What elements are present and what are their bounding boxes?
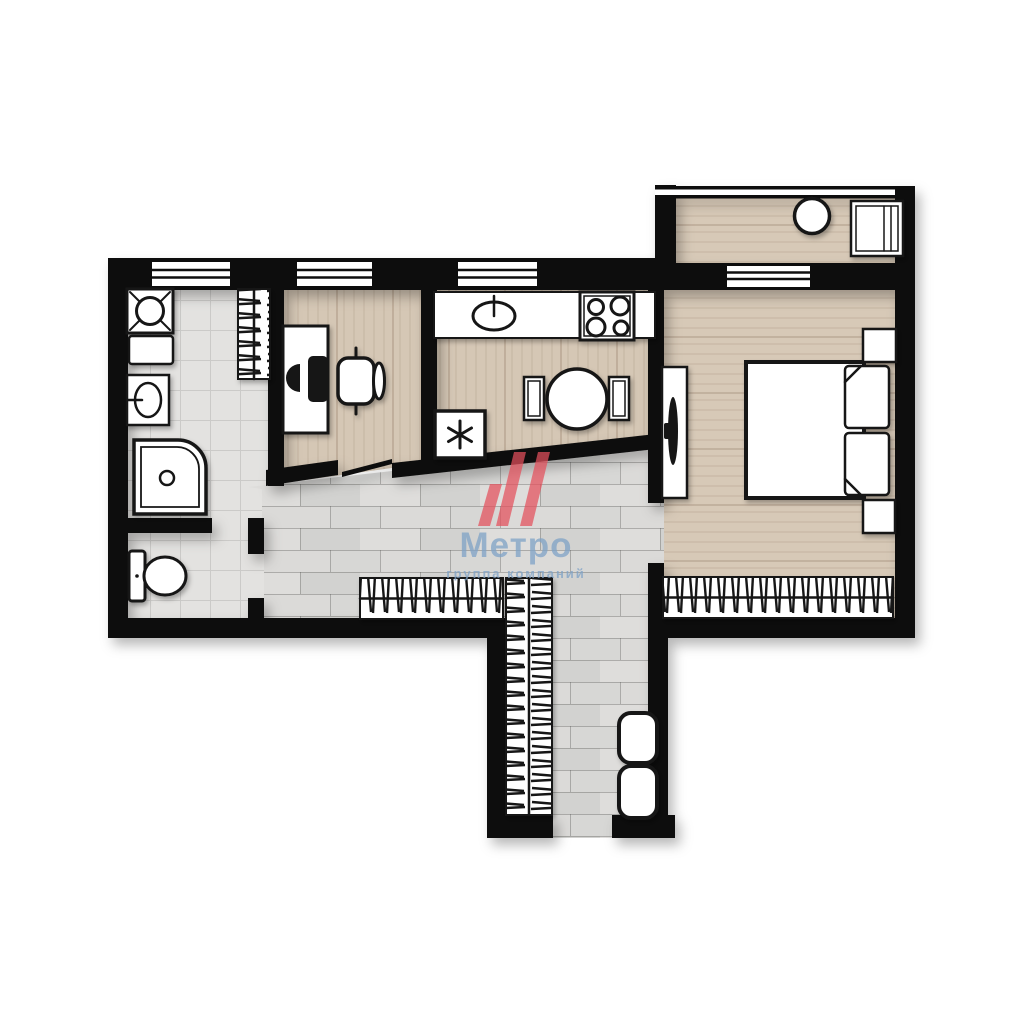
- bathroom-bottom-wall: [112, 518, 212, 533]
- wc-wall-corner: [248, 518, 264, 554]
- wc-door-threshold: [248, 552, 264, 598]
- bathroom-cabinet: [129, 336, 173, 364]
- bathroom-door-threshold: [212, 518, 248, 533]
- floor-plan-canvas: Метро группа компаний: [0, 0, 1024, 1024]
- tv-stand: [662, 367, 687, 498]
- dining-chair-right: [609, 377, 629, 420]
- washing-machine-icon: [127, 289, 173, 333]
- bottom-wall-left: [108, 618, 505, 638]
- nightstand-bottom: [863, 500, 895, 533]
- left-outer-wall: [108, 258, 128, 638]
- fridge-icon: [435, 411, 485, 458]
- floor-plan-drawing: [0, 0, 1024, 1024]
- dining-table-icon: [547, 369, 607, 429]
- window-kitchen: [458, 262, 537, 286]
- window-bathroom: [152, 262, 230, 286]
- corridor-left-wall: [487, 618, 505, 838]
- stove-icon: [580, 292, 634, 340]
- corridor-wardrobe-hangers: [506, 578, 552, 815]
- balcony-glazing-inner-line: [655, 195, 900, 199]
- hall-wardrobe-hangers: [360, 578, 503, 619]
- bedroom-wardrobe-hangers: [663, 577, 893, 618]
- balcony-glazing-outer-line: [655, 186, 900, 190]
- entrance-wall-left: [487, 815, 553, 838]
- shower-tray-icon: [134, 440, 206, 514]
- pouf-top: [619, 713, 657, 763]
- bedroom-bottom-wall: [648, 618, 915, 638]
- window-bedroom-balcony: [727, 266, 810, 287]
- window-study: [297, 262, 372, 286]
- dining-chair-left: [524, 377, 544, 420]
- wc-wall-lower: [248, 598, 264, 620]
- balcony-glazing-band: [655, 190, 895, 196]
- drying-rack-icon: [238, 289, 270, 379]
- balcony-table-icon: [795, 199, 830, 234]
- nightstand-top: [863, 329, 896, 362]
- entrance-floor: [553, 815, 612, 838]
- pouf-bottom: [619, 766, 657, 818]
- pillow-top: [845, 366, 889, 428]
- bedroom-door-threshold: [648, 503, 664, 563]
- pillow-bottom: [845, 433, 889, 495]
- balcony-cabinet: [851, 201, 903, 256]
- washbasin-icon: [127, 375, 169, 425]
- hall-bedroom-wall-lower: [648, 563, 664, 638]
